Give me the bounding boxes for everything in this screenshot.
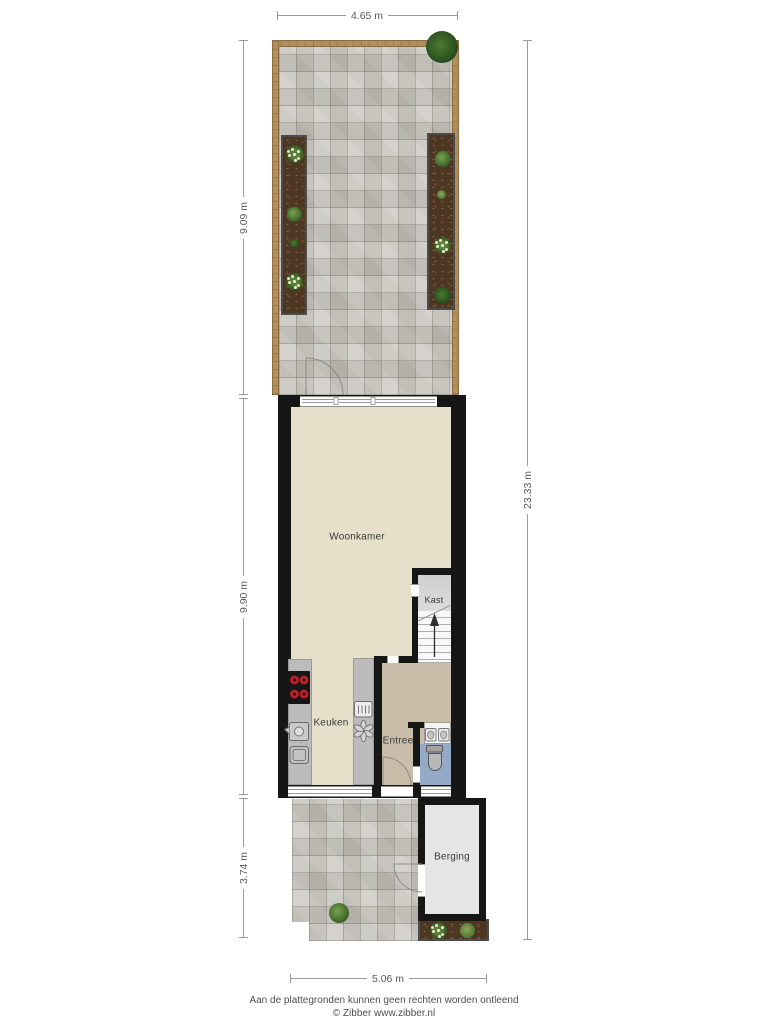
room-keuken-label: Keuken [313,718,348,729]
sliding-door-glass [300,396,437,407]
wall-kitchen-hall [374,656,382,785]
dimension-label-front-width: 5.06 m [367,973,409,985]
staircase [418,611,451,663]
planter-left [281,135,307,315]
garden-fence-left [272,40,279,395]
planter-front [418,919,489,941]
footer-disclaimer: Aan de plattegronden kunnen geen rechten… [0,995,768,1006]
bush-icon [329,903,349,923]
storage-door-opening [418,864,425,897]
wc-shelf [424,722,451,744]
room-berging-label: Berging [434,852,470,863]
dimension-label-total-depth: 23.33 m [522,466,534,514]
dimension-label-garden-width: 4.65 m [346,10,388,22]
room-kast [418,575,451,611]
tree-icon [426,31,458,63]
dimension-label-house-depth: 9.90 m [238,576,250,618]
wc-window [421,786,451,797]
planter-right [427,133,455,310]
closet-door-opening [411,584,419,597]
room-woonkamer-label: Woonkamer [329,532,385,543]
living-hall-door-opening [387,656,399,663]
kitchen-window [288,786,372,797]
wall-wc-top-stub [408,722,424,728]
room-kast-label: Kast [425,595,444,605]
dimension-label-front-depth: 3.74 m [238,847,250,889]
floorplan-canvas: 4.65 m 5.06 m 9.09 m 9.90 m 3.74 m 23.33… [0,0,768,1024]
kitchen-counter-left [288,659,312,785]
wall-closet-top [418,568,451,575]
kitchen-counter-right [353,658,374,785]
front-door [381,786,413,797]
room-entree-label: Entree [383,736,414,747]
wc-door-opening [413,766,420,783]
dimension-label-garden-depth: 9.09 m [238,197,250,239]
room-wc [420,744,451,785]
front-paving [292,799,420,941]
footer-copyright: © Zibber www.zibber.nl [0,1008,768,1019]
